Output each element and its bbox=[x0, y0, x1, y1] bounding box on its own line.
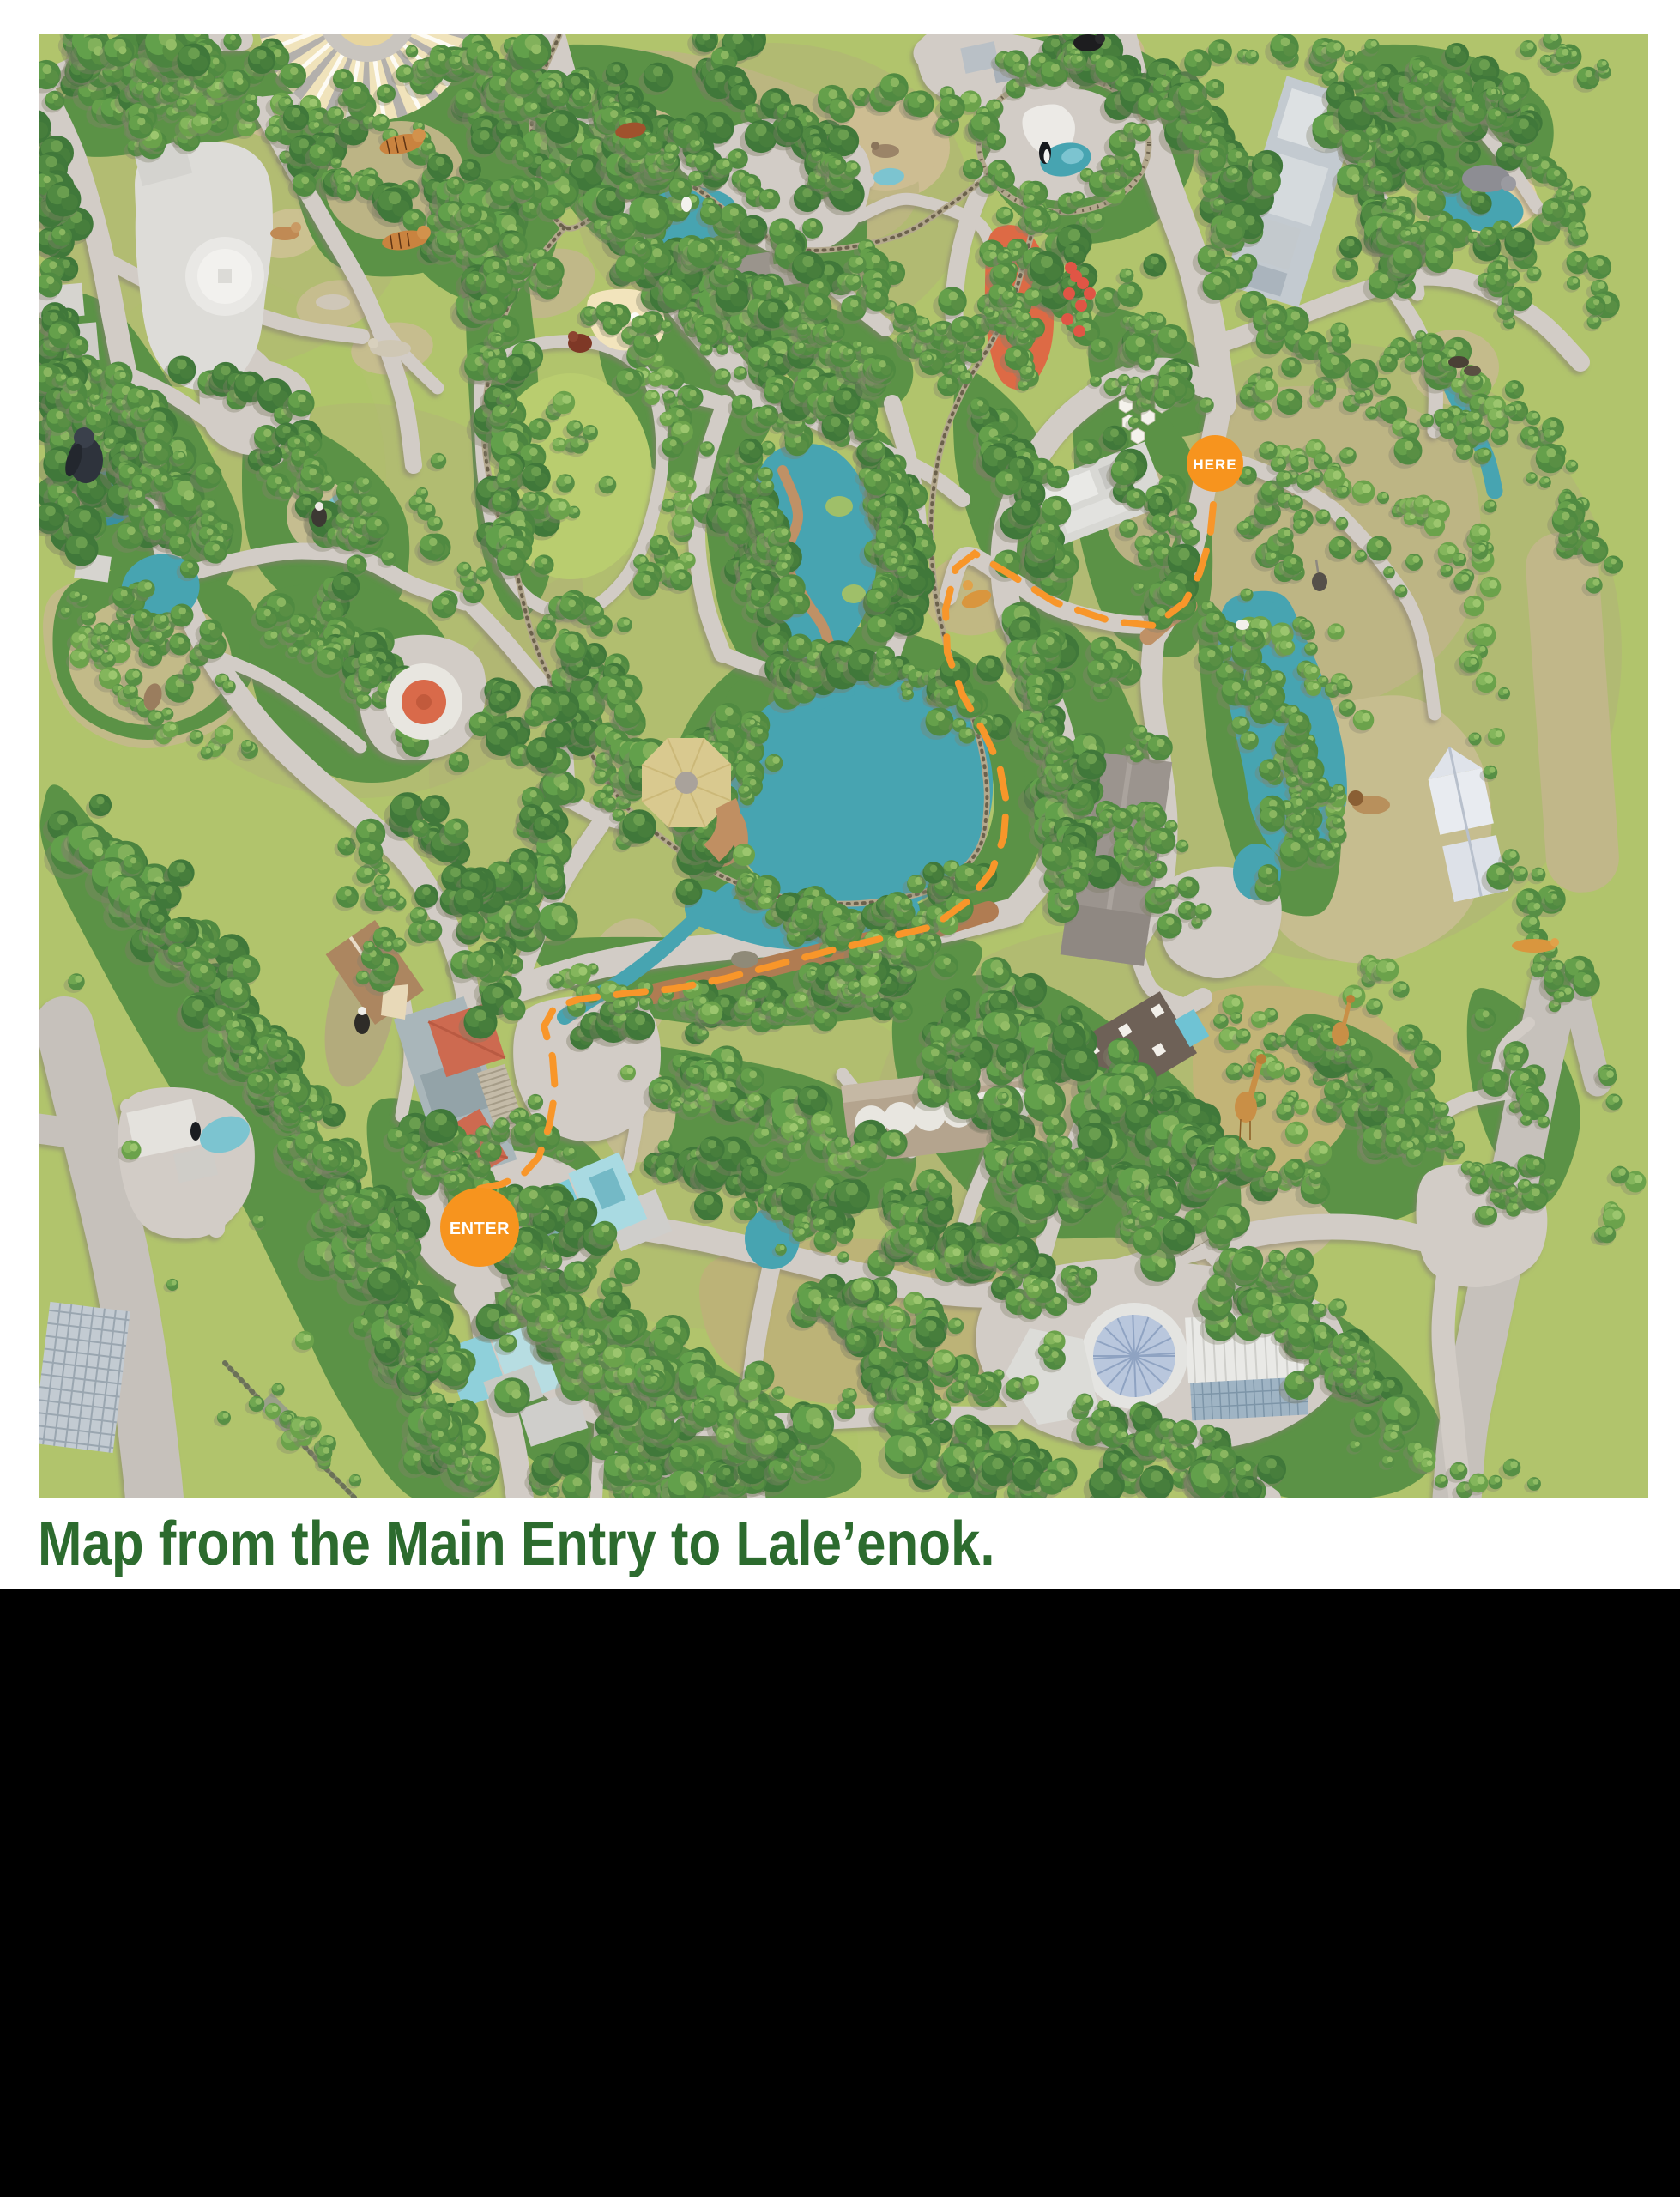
svg-text:ENTER: ENTER bbox=[450, 1220, 510, 1238]
svg-text:HERE: HERE bbox=[1193, 457, 1236, 473]
